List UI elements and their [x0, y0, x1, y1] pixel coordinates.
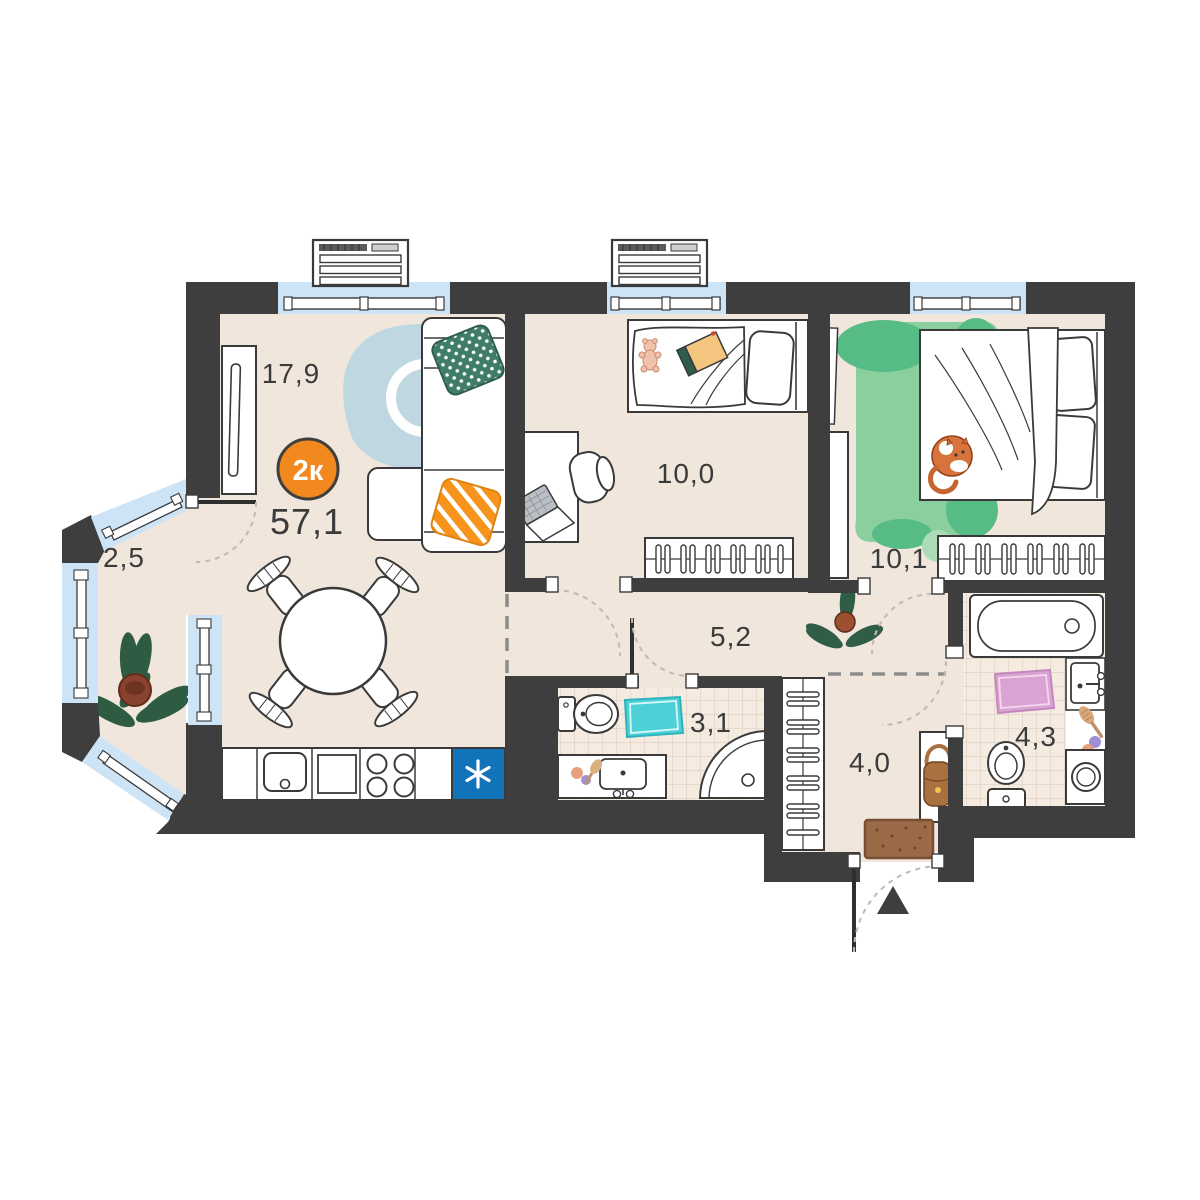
- area-label-kids-bedroom: 10,0: [657, 458, 716, 489]
- entrance-door: [848, 854, 944, 952]
- entrance-arrow-icon: [877, 886, 909, 914]
- area-label-entry-hall: 4,0: [849, 747, 891, 778]
- bathtub: [970, 595, 1103, 657]
- doormat: [865, 820, 933, 858]
- bag: [924, 762, 951, 806]
- coat-rack: [782, 678, 824, 850]
- washing-machine: [1066, 750, 1105, 804]
- vanity-sink: [558, 755, 666, 798]
- floor-plan: 2к 57,1 17,9 2,5 10,0 10,1 5,2 3,1 4,0 4…: [0, 0, 1200, 1200]
- kids-pillow: [746, 331, 795, 406]
- ac-unit: [313, 240, 408, 286]
- kitchen-worktop: [318, 755, 356, 793]
- balcony-doorway-floor: [186, 498, 222, 615]
- wardrobe-rack-kids: [645, 538, 793, 580]
- area-label-hallway: 5,2: [710, 621, 752, 652]
- floor-plan-page: 2к 57,1 17,9 2,5 10,0 10,1 5,2 3,1 4,0 4…: [0, 0, 1200, 1200]
- fridge: [452, 748, 505, 800]
- pink-rug: [995, 670, 1054, 713]
- dining-table: [280, 588, 386, 694]
- teal-rug: [625, 697, 683, 737]
- apartment-type-badge: 2к: [278, 439, 338, 499]
- tv-unit: [222, 346, 256, 494]
- area-label-living: 17,9: [262, 358, 321, 389]
- toilet-big: [988, 742, 1025, 809]
- ac-units: [313, 240, 707, 286]
- bathroom-sink: [1066, 658, 1105, 710]
- area-label-bedroom: 10,1: [870, 543, 929, 574]
- double-bed: [920, 328, 1105, 514]
- balcony-door-window: [188, 615, 222, 725]
- area-label-bathroom-big: 4,3: [1015, 721, 1057, 752]
- area-label-bathroom-small: 3,1: [690, 707, 732, 738]
- wardrobe-rack-bedroom: [938, 536, 1105, 582]
- window-bedroom: [910, 282, 1026, 314]
- kids-bed: [628, 320, 808, 412]
- toilet-small: [558, 695, 618, 733]
- badge-label: 2к: [293, 455, 324, 487]
- total-area-label: 57,1: [270, 501, 344, 542]
- kitchen-counter: [222, 748, 505, 800]
- area-label-balcony: 2,5: [103, 542, 145, 573]
- ac-unit: [612, 240, 707, 286]
